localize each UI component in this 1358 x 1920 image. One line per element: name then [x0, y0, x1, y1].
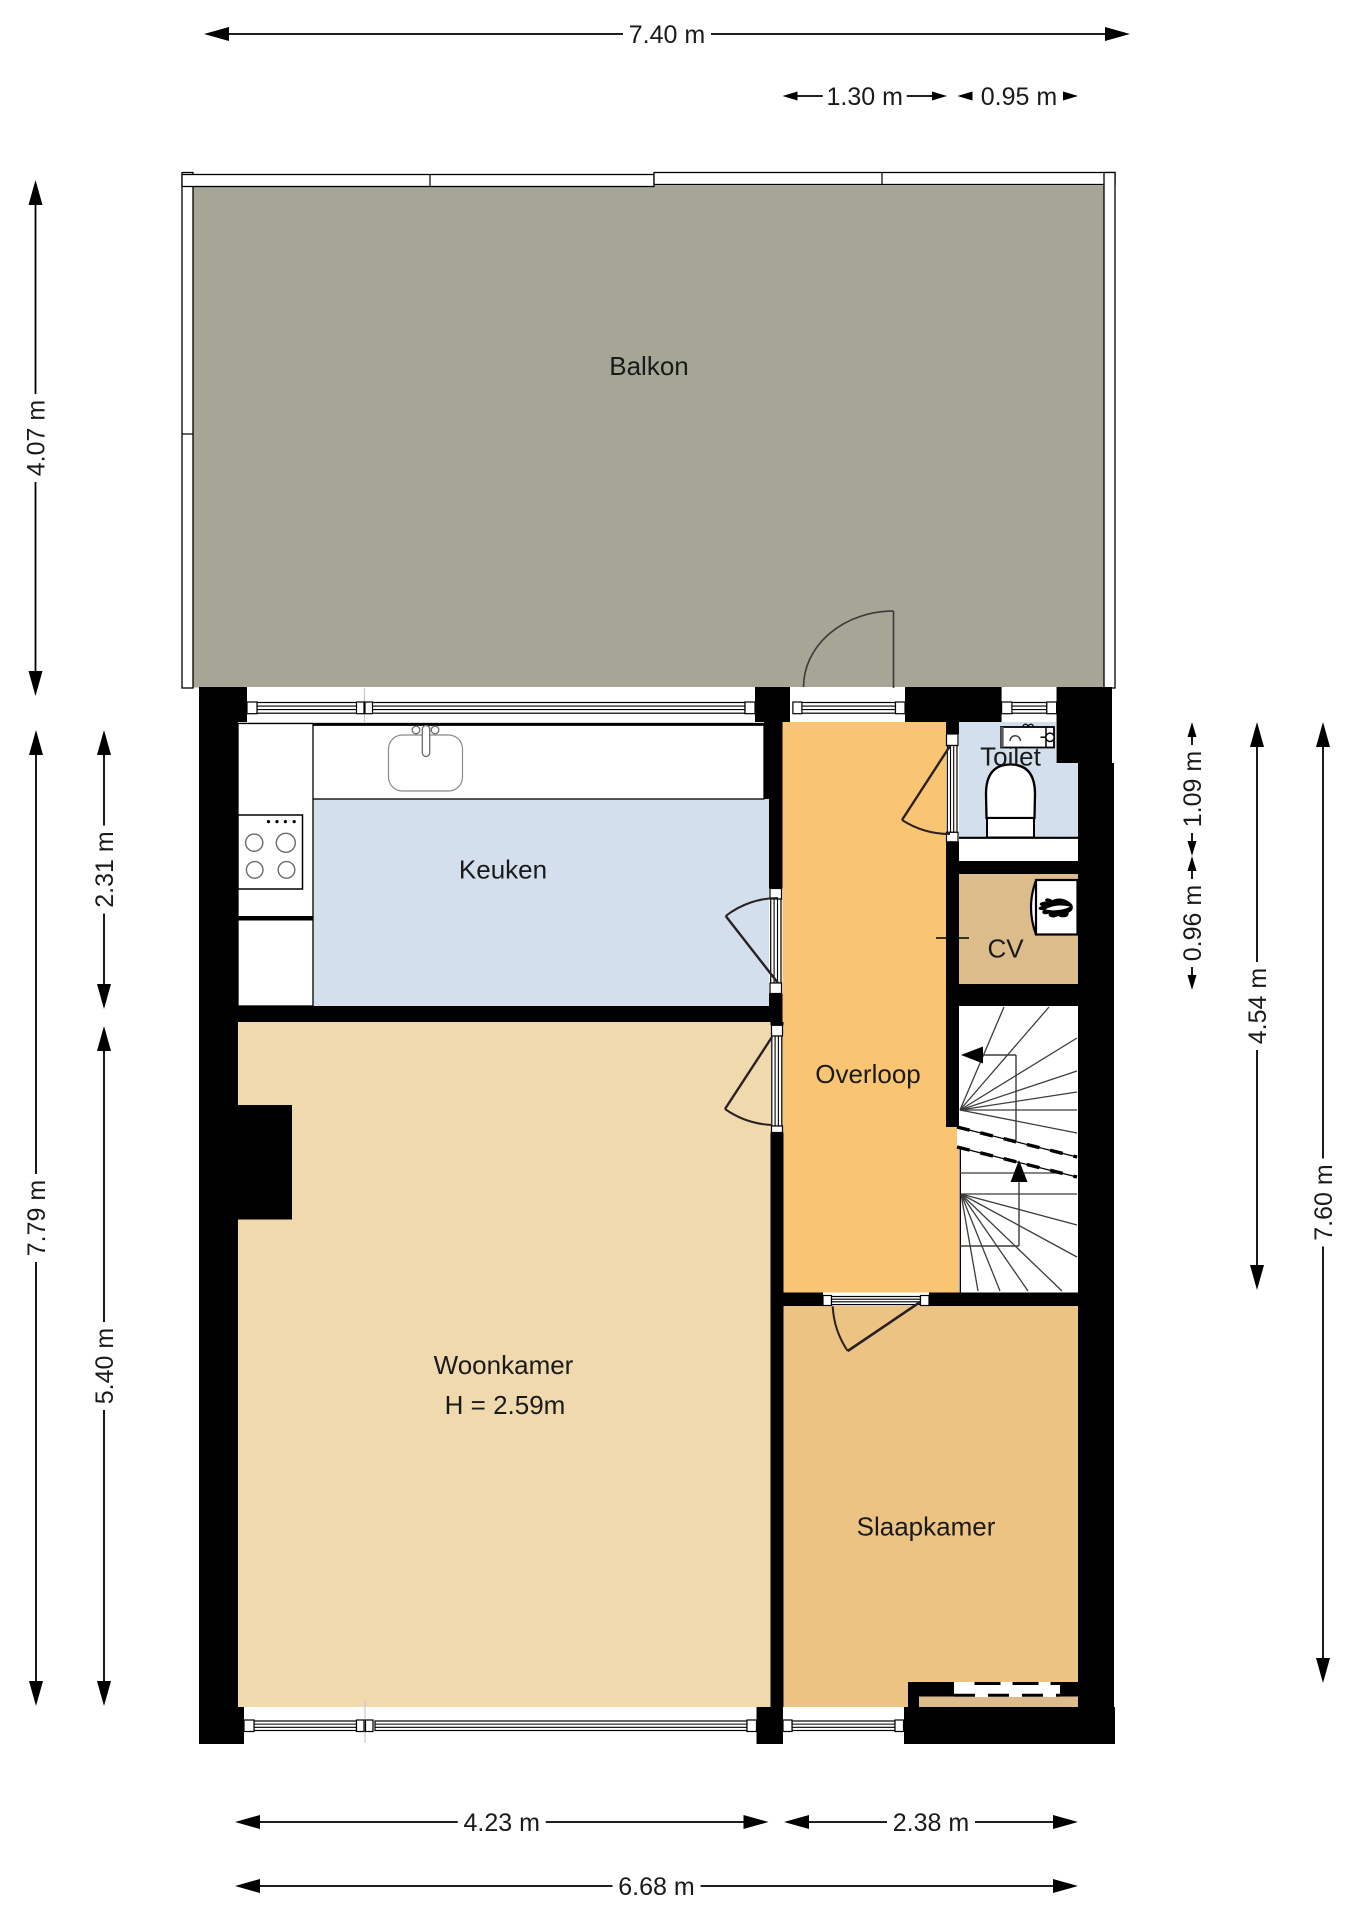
- svg-text:Overloop: Overloop: [815, 1059, 921, 1089]
- svg-text:Balkon: Balkon: [609, 351, 689, 381]
- svg-text:1.30 m: 1.30 m: [827, 83, 903, 111]
- svg-text:H = 2.59m: H = 2.59m: [445, 1390, 566, 1420]
- svg-text:0.95 m: 0.95 m: [981, 83, 1057, 111]
- svg-text:0.96 m: 0.96 m: [1179, 885, 1207, 961]
- svg-text:7.40 m: 7.40 m: [629, 21, 705, 49]
- svg-text:4.23 m: 4.23 m: [464, 1809, 540, 1837]
- svg-text:Slaapkamer: Slaapkamer: [857, 1512, 996, 1542]
- svg-text:4.07 m: 4.07 m: [23, 400, 51, 476]
- svg-text:Woonkamer: Woonkamer: [434, 1350, 574, 1380]
- svg-text:2.31 m: 2.31 m: [91, 831, 119, 907]
- svg-text:5.40 m: 5.40 m: [91, 1328, 119, 1404]
- svg-text:Keuken: Keuken: [459, 855, 547, 885]
- svg-text:4.54 m: 4.54 m: [1244, 968, 1272, 1044]
- svg-text:7.79 m: 7.79 m: [23, 1180, 51, 1256]
- svg-text:CV: CV: [987, 934, 1024, 964]
- svg-text:1.09 m: 1.09 m: [1179, 751, 1207, 827]
- svg-text:6.68 m: 6.68 m: [618, 1873, 694, 1901]
- svg-text:Toilet: Toilet: [980, 742, 1041, 772]
- svg-text:2.38 m: 2.38 m: [893, 1809, 969, 1837]
- svg-text:7.60 m: 7.60 m: [1310, 1164, 1338, 1240]
